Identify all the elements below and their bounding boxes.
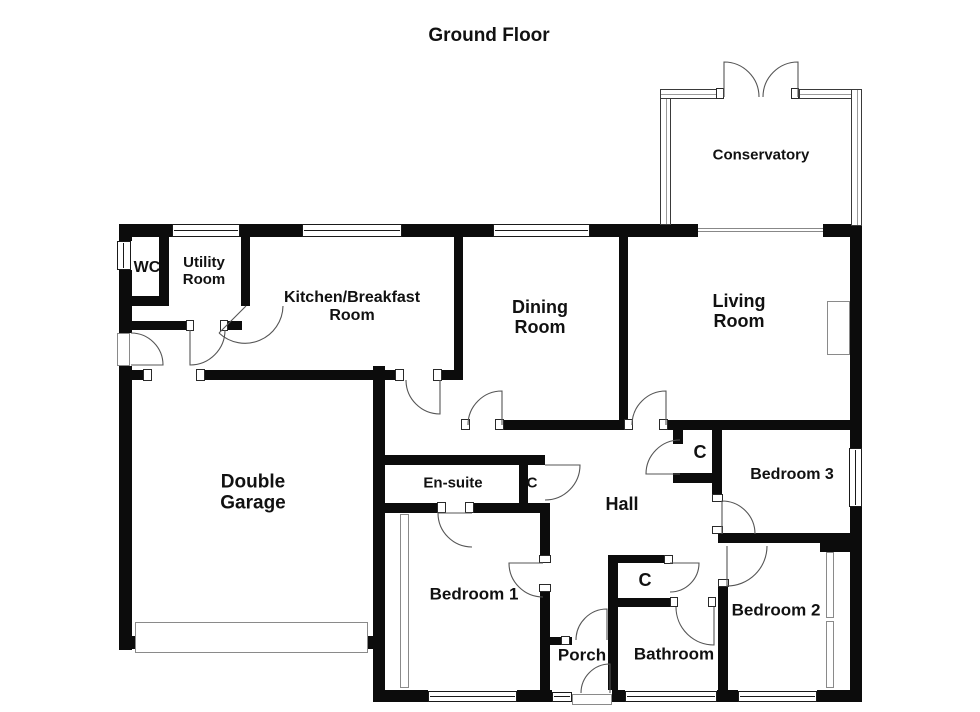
window-bedroom3 bbox=[849, 448, 862, 507]
page-title: Ground Floor bbox=[428, 25, 549, 47]
window-wc bbox=[117, 241, 131, 270]
door-arc-closet-bathroom bbox=[670, 563, 699, 592]
window-top-2 bbox=[302, 224, 402, 237]
room-label-bathroom: Bathroom bbox=[634, 644, 714, 663]
floor-plan: Ground Floor bbox=[0, 0, 980, 712]
jamb bbox=[624, 419, 633, 430]
jamb bbox=[196, 369, 205, 381]
wall-ensuite-bottom-right bbox=[473, 503, 550, 513]
jamb bbox=[220, 320, 228, 331]
door-arc-kitchen-hall bbox=[406, 380, 440, 414]
door-arc-bathroom bbox=[676, 607, 714, 645]
conservatory-wall-right bbox=[851, 89, 862, 226]
jamb bbox=[437, 502, 446, 513]
wall-top-3 bbox=[402, 224, 493, 237]
room-label-utility: Utility Room bbox=[183, 255, 226, 289]
door-arc-bedroom3 bbox=[722, 501, 755, 534]
wardrobe-bedroom1 bbox=[400, 514, 409, 688]
door-arc-ensuite bbox=[438, 513, 472, 547]
wall-right-upper bbox=[850, 226, 862, 448]
window-top-1 bbox=[172, 224, 240, 237]
room-label-dining: Dining Room bbox=[512, 297, 568, 337]
wall-corridor-2 bbox=[203, 370, 403, 380]
jamb bbox=[433, 369, 442, 381]
wall-closet-bath-bottom bbox=[608, 598, 678, 607]
room-label-garage: Double Garage bbox=[220, 472, 285, 515]
jamb bbox=[712, 526, 723, 534]
conservatory-wall-left bbox=[660, 89, 671, 225]
window-bedroom1 bbox=[428, 691, 517, 702]
wall-bedroom2-left bbox=[718, 587, 728, 692]
door-arc-porch-inner bbox=[576, 609, 607, 640]
jamb bbox=[664, 555, 673, 564]
jamb bbox=[791, 88, 799, 99]
doorsill-front-door bbox=[572, 694, 612, 705]
room-label-bedroom3: Bedroom 3 bbox=[750, 466, 834, 484]
wall-closet-hall-left bbox=[673, 430, 683, 444]
jamb bbox=[395, 369, 404, 381]
window-porch-sidelight bbox=[552, 692, 572, 702]
jamb bbox=[186, 320, 194, 331]
wall-bottom-3 bbox=[612, 690, 625, 702]
wall-wc-bottom bbox=[130, 296, 169, 306]
wall-utility-bottom-right bbox=[226, 321, 242, 330]
door-arc-closet-ensuite bbox=[545, 465, 580, 500]
wall-utility-bottom-left bbox=[119, 321, 190, 330]
door-arc-side-entrance bbox=[131, 333, 163, 365]
window-bedroom2 bbox=[738, 691, 817, 702]
door-arc-bedroom2 bbox=[727, 546, 767, 586]
window-bathroom bbox=[625, 691, 717, 702]
chimney-living-room bbox=[827, 301, 850, 355]
closet-label-ensuite: C bbox=[527, 476, 538, 493]
wall-bottom-1 bbox=[385, 690, 428, 702]
wardrobe-bedroom2-lower bbox=[826, 621, 834, 688]
room-label-kitchen: Kitchen/Breakfast Room bbox=[284, 289, 420, 325]
wall-top-5 bbox=[823, 224, 853, 237]
door-arc-front-door bbox=[581, 664, 610, 693]
jamb bbox=[465, 502, 474, 513]
wall-closet-hall-right bbox=[712, 420, 722, 502]
door-arc-utility bbox=[190, 330, 225, 365]
wall-dining-bottom bbox=[502, 420, 630, 430]
jamb bbox=[659, 419, 668, 430]
room-label-bedroom1: Bedroom 1 bbox=[430, 584, 519, 603]
closet-label-hall: C bbox=[694, 442, 707, 462]
jamb bbox=[561, 636, 570, 645]
jamb bbox=[716, 88, 724, 99]
threshold-conservatory bbox=[698, 228, 823, 232]
jamb bbox=[461, 419, 470, 430]
closet-label-bathroom: C bbox=[639, 570, 652, 590]
room-label-conservatory: Conservatory bbox=[713, 148, 810, 165]
garage-door bbox=[135, 622, 368, 653]
wall-top-4 bbox=[590, 224, 698, 237]
jamb bbox=[718, 579, 729, 587]
wall-utility-kitchen bbox=[241, 233, 250, 306]
room-label-bedroom2: Bedroom 2 bbox=[732, 600, 821, 619]
room-label-ensuite: En-suite bbox=[423, 476, 482, 493]
room-label-living: Living Room bbox=[713, 291, 766, 331]
jamb bbox=[539, 555, 551, 563]
wall-garage-right bbox=[373, 366, 385, 702]
room-label-wc: WC bbox=[134, 259, 161, 277]
wardrobe-bedroom2-upper bbox=[826, 552, 834, 618]
window-top-3 bbox=[493, 224, 590, 237]
wall-hall-left-lower bbox=[540, 592, 550, 702]
room-label-hall: Hall bbox=[605, 494, 638, 514]
jamb bbox=[670, 597, 678, 607]
doorframe-side-entrance bbox=[117, 333, 130, 366]
door-arc-closet-hall bbox=[646, 440, 680, 474]
wall-ensuite-top bbox=[383, 455, 545, 465]
wall-bedroom3-top bbox=[665, 420, 853, 430]
door-arc-french-left bbox=[724, 62, 759, 97]
wall-bedroom2-corner bbox=[820, 542, 853, 552]
wall-kitchen-dining bbox=[454, 233, 463, 377]
jamb bbox=[712, 494, 723, 502]
jamb bbox=[143, 369, 152, 381]
conservatory-wall-top-left bbox=[660, 89, 724, 99]
wall-bathroom-left bbox=[608, 555, 618, 690]
room-label-porch: Porch bbox=[558, 645, 606, 664]
jamb bbox=[539, 584, 551, 592]
wall-hall-left-upper bbox=[540, 503, 550, 563]
jamb bbox=[495, 419, 504, 430]
wall-bottom-5 bbox=[817, 690, 862, 702]
wall-dining-living bbox=[619, 235, 628, 422]
wall-left-lower bbox=[119, 366, 132, 650]
wall-ensuite-bottom-left bbox=[383, 503, 445, 513]
jamb bbox=[708, 597, 716, 607]
